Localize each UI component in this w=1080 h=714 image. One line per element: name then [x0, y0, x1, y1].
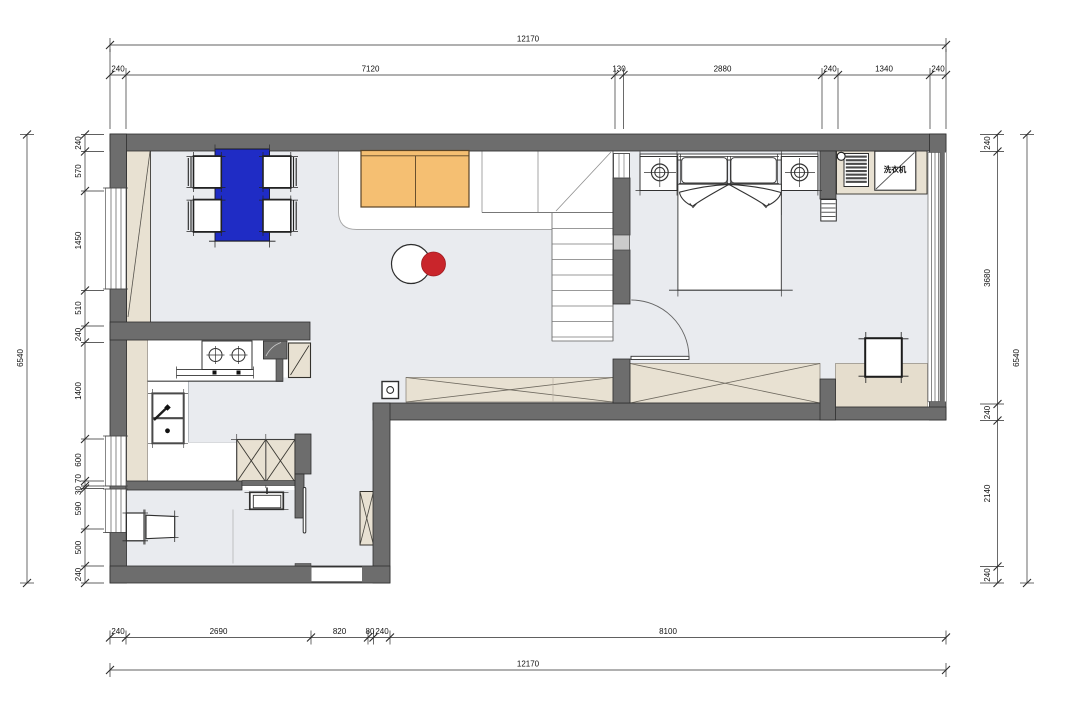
svg-text:30: 30 — [74, 486, 83, 495]
svg-text:2880: 2880 — [714, 65, 732, 74]
svg-text:240: 240 — [983, 405, 992, 419]
svg-text:240: 240 — [931, 65, 945, 74]
svg-text:1340: 1340 — [875, 65, 893, 74]
svg-text:130: 130 — [612, 65, 626, 74]
svg-text:600: 600 — [74, 453, 83, 467]
svg-text:80: 80 — [366, 627, 375, 636]
svg-text:12170: 12170 — [517, 35, 540, 44]
svg-text:240: 240 — [111, 627, 125, 636]
svg-text:3680: 3680 — [983, 269, 992, 287]
svg-text:240: 240 — [375, 627, 389, 636]
svg-text:240: 240 — [74, 327, 83, 341]
svg-text:240: 240 — [74, 567, 83, 581]
svg-text:240: 240 — [823, 65, 837, 74]
svg-text:240: 240 — [111, 65, 125, 74]
svg-text:1450: 1450 — [74, 231, 83, 249]
svg-text:510: 510 — [74, 301, 83, 315]
svg-text:820: 820 — [333, 627, 347, 636]
svg-text:2140: 2140 — [983, 484, 992, 502]
svg-text:570: 570 — [74, 164, 83, 178]
svg-text:2690: 2690 — [210, 627, 228, 636]
svg-text:240: 240 — [983, 136, 992, 150]
svg-text:6540: 6540 — [1012, 349, 1021, 367]
svg-text:240: 240 — [983, 568, 992, 582]
svg-text:12170: 12170 — [517, 660, 540, 669]
svg-text:590: 590 — [74, 501, 83, 515]
svg-text:70: 70 — [74, 474, 83, 483]
svg-text:240: 240 — [74, 136, 83, 150]
svg-text:6540: 6540 — [16, 349, 25, 367]
svg-text:7120: 7120 — [362, 65, 380, 74]
svg-text:500: 500 — [74, 540, 83, 554]
svg-text:8100: 8100 — [659, 627, 677, 636]
svg-text:洗衣机: 洗衣机 — [884, 164, 907, 174]
svg-text:1400: 1400 — [74, 382, 83, 400]
